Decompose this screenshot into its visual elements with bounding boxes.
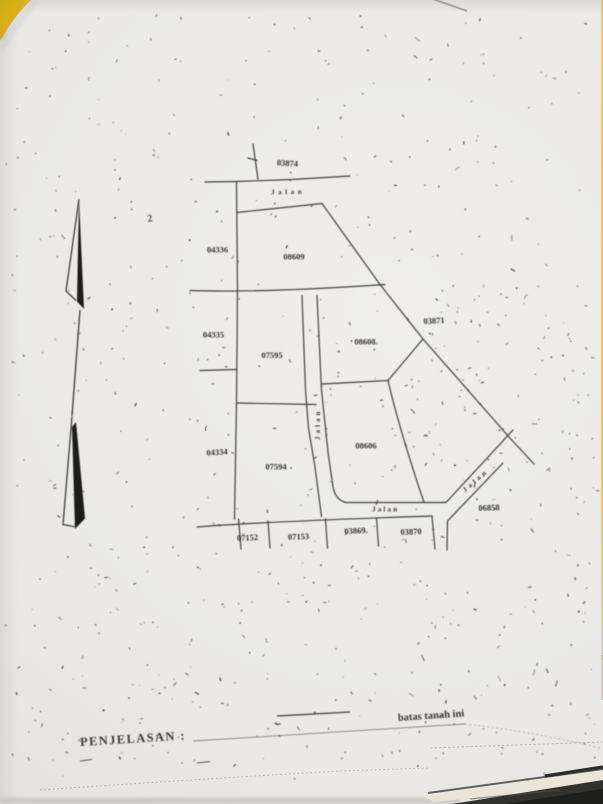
svg-text:08609: 08609 — [283, 252, 304, 262]
svg-text:08606: 08606 — [355, 441, 376, 451]
svg-text:03869.: 03869. — [344, 525, 368, 536]
svg-text:04336: 04336 — [207, 245, 228, 255]
svg-text:07153: 07153 — [288, 531, 310, 542]
svg-text:08608: 08608 — [354, 337, 375, 347]
svg-text:batas tanah ini: batas tanah ini — [398, 708, 465, 724]
svg-text:07595: 07595 — [261, 350, 282, 360]
svg-text:PENJELASAN :: PENJELASAN : — [80, 729, 187, 749]
svg-text:04334: 04334 — [206, 446, 229, 458]
svg-text:03874: 03874 — [277, 157, 300, 169]
svg-text:03871: 03871 — [423, 315, 445, 326]
svg-text:04335: 04335 — [203, 330, 224, 340]
svg-text:Jalan: Jalan — [372, 506, 399, 514]
svg-text:03870: 03870 — [400, 526, 422, 537]
svg-text:06858: 06858 — [478, 502, 500, 513]
svg-text:Jalan: Jalan — [271, 188, 305, 197]
svg-text:07594: 07594 — [265, 462, 287, 472]
svg-text:07152: 07152 — [237, 532, 259, 543]
svg-text:Jalan: Jalan — [314, 409, 322, 440]
svg-text:2: 2 — [147, 213, 154, 225]
